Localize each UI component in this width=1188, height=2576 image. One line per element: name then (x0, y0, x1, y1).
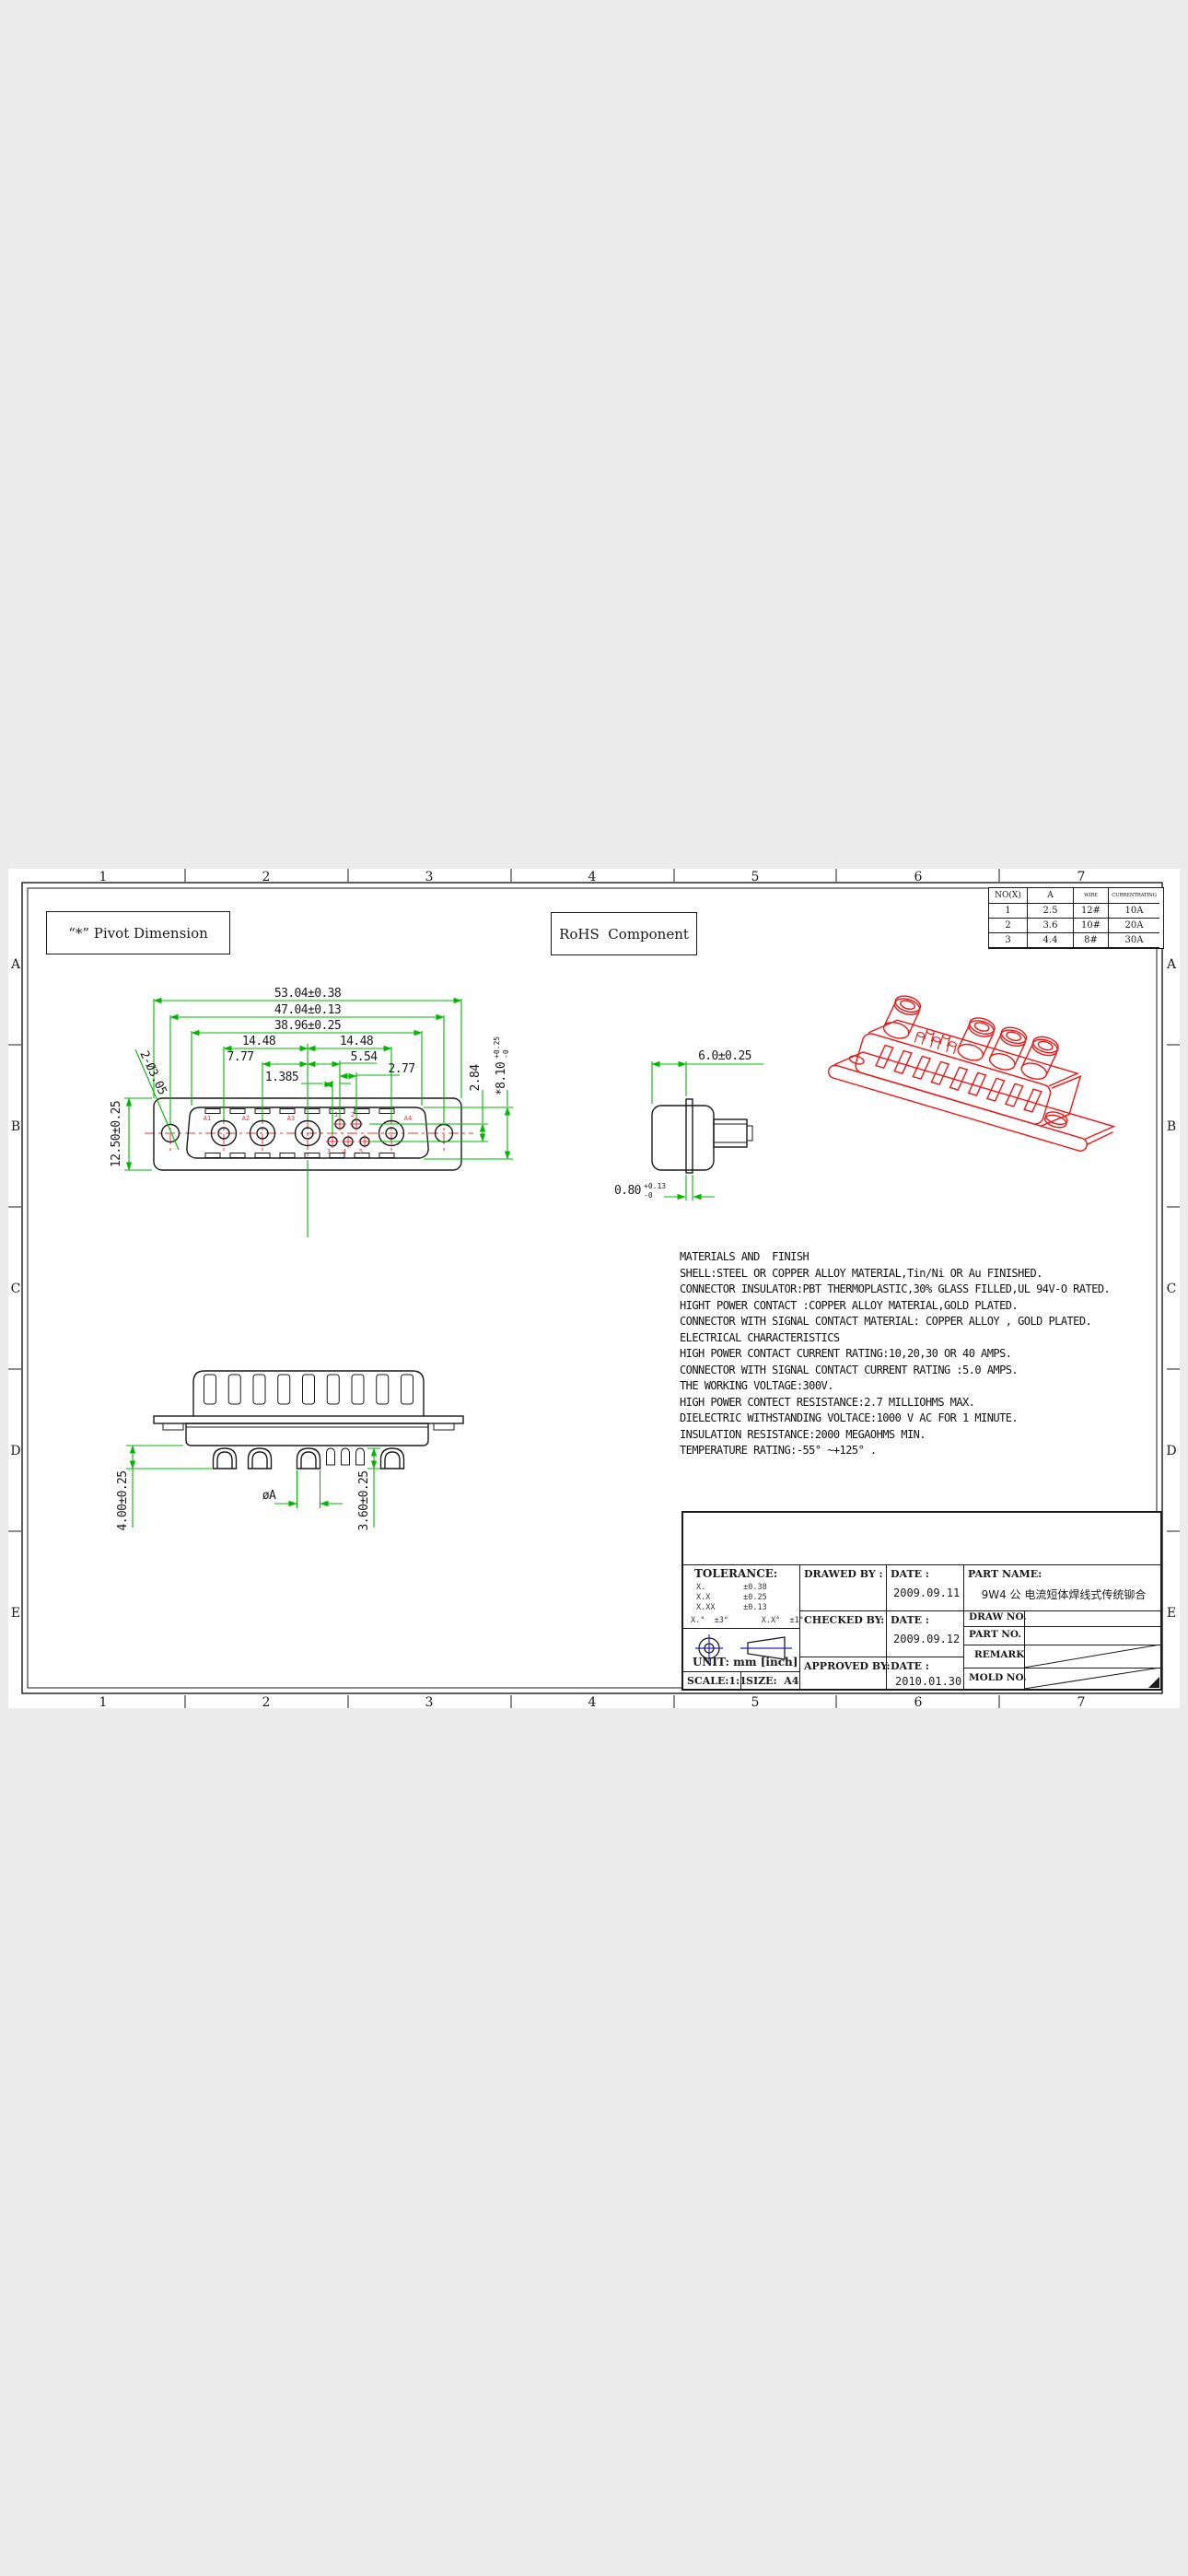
dim-777: 7.77 (227, 1050, 254, 1064)
draw-no-label: DRAW NO. (969, 1611, 1027, 1622)
zone-col: 6 (914, 1695, 923, 1708)
rt-header-current: CURRENTRATING (1109, 888, 1159, 904)
rt-cell: 30A (1109, 933, 1159, 948)
contact-label-a2: A2 (242, 1115, 250, 1122)
side-view: 6.0±0.25 0.80 +0.13 -0 (614, 1049, 763, 1200)
title-block: TOLERANCE: X. ±0.38 X.X ±0.25 X.XX ±0.13… (681, 1511, 1162, 1691)
zone-row: C (11, 1282, 21, 1296)
dim-1448-left: 14.48 (242, 1035, 275, 1048)
rt-cell: 2.5 (1028, 904, 1074, 919)
zone-col: 7 (1077, 870, 1086, 884)
rt-header-a: A (1028, 888, 1074, 904)
zone-col: 1 (99, 870, 108, 884)
dim-47: 47.04±0.13 (274, 1003, 341, 1017)
zone-row: E (1167, 1606, 1176, 1621)
rt-cell: 1 (989, 904, 1028, 919)
approved-date: 2010.01.30 (895, 1675, 961, 1688)
approved-by-label: APPROVED BY: (804, 1660, 891, 1672)
dim-554: 5.54 (351, 1050, 379, 1064)
sheet-corner-mark (1148, 1677, 1159, 1688)
materials-notes: MATERIALS AND FINISH SHELL:STEEL OR COPP… (680, 1249, 1155, 1459)
dim-1385: 1.385 (265, 1071, 298, 1084)
date-label-2: DATE : (891, 1614, 929, 1626)
rt-cell: 10A (1109, 904, 1159, 919)
dim-39: 38.96±0.25 (274, 1019, 341, 1033)
checked-by-label: CHECKED BY: (804, 1614, 884, 1626)
mold-no-label: MOLD NO. (969, 1672, 1027, 1683)
rohs-note: RoHS Component (551, 912, 697, 955)
screenshot-page: 1 2 3 4 5 6 7 1 2 3 4 5 6 7 A B C D E A … (0, 0, 1188, 2576)
tolerance-title: TOLERANCE: (694, 1567, 777, 1580)
pin-label-4: 4 (343, 1148, 346, 1155)
rt-header-no: NO(X) (989, 888, 1028, 904)
zone-row: E (11, 1606, 20, 1621)
zone-col: 6 (914, 870, 923, 884)
zone-col: 5 (751, 870, 760, 884)
dim-60: 6.0±0.25 (698, 1049, 751, 1063)
dim-810-sub: -0 (502, 1049, 510, 1059)
drawn-date: 2009.09.11 (893, 1587, 960, 1599)
contact-label-a4: A4 (404, 1115, 412, 1122)
zone-row: D (1166, 1444, 1176, 1458)
unit-label: UNIT: mm [inch] (693, 1656, 798, 1669)
pin-label-1: 1 (334, 1111, 338, 1118)
zone-col: 2 (262, 1695, 271, 1708)
contact-label-a1: A1 (204, 1115, 211, 1122)
rt-cell: 2 (989, 919, 1028, 933)
zone-col: 5 (751, 1695, 760, 1708)
rt-cell: 10# (1074, 919, 1109, 933)
zone-row: C (1167, 1282, 1177, 1296)
zone-col: 4 (588, 1695, 597, 1708)
dim-080-sub: -0 (644, 1191, 653, 1200)
dim-277: 2.77 (389, 1062, 415, 1076)
dim-dia-a: øA (262, 1489, 276, 1503)
dim-080: 0.80 (614, 1184, 641, 1198)
contact-label-a3: A3 (287, 1115, 295, 1122)
dim-1448-right: 14.48 (340, 1035, 373, 1048)
rt-cell: 8# (1074, 933, 1109, 948)
date-label-3: DATE : (891, 1660, 929, 1672)
zone-row: B (11, 1119, 20, 1134)
zone-col: 4 (588, 870, 597, 884)
remark-slash (1024, 1645, 1160, 1668)
date-label-1: DATE : (891, 1568, 929, 1580)
size-label: SIZE: A4 (746, 1675, 798, 1687)
rt-cell: 3.6 (1028, 919, 1074, 933)
pin-label-3: 3 (327, 1148, 331, 1155)
bottom-view: 4.00±0.25 3.60±0.25 øA (116, 1371, 463, 1531)
mold-slash (1024, 1668, 1160, 1689)
zone-col: 1 (99, 1695, 108, 1708)
rt-header-wire: WIRE (1074, 888, 1109, 904)
scale-label: SCALE:1:1 (687, 1675, 747, 1687)
part-name-value: 9W4 公 电流短体焊线式传统铆合 (965, 1587, 1162, 1602)
rt-cell: 20A (1109, 919, 1159, 933)
tolerance-angles: X.° ±3° X.X° ±1° (691, 1616, 804, 1626)
zone-col: 2 (262, 870, 271, 884)
rt-cell: 4.4 (1028, 933, 1074, 948)
zone-row: A (10, 957, 21, 972)
zone-col: 3 (425, 870, 434, 884)
dim-810: *8.10 (495, 1062, 508, 1095)
dim-53: 53.04±0.38 (274, 987, 341, 1001)
checked-date: 2009.09.12 (893, 1633, 960, 1645)
rohs-label: RoHS Component (559, 926, 689, 943)
part-no-label: PART NO. (969, 1629, 1021, 1640)
dim-1250: 12.50±0.25 (110, 1101, 123, 1167)
zone-row: A (1166, 957, 1177, 972)
isometric-view (827, 980, 1134, 1158)
remark-label: REMARK (974, 1649, 1024, 1660)
dim-810-sup: +0.25 (493, 1036, 501, 1059)
part-name-label: PART NAME: (968, 1568, 1042, 1580)
dim-400: 4.00±0.25 (116, 1470, 130, 1530)
zone-row: B (1167, 1119, 1176, 1134)
tolerance-rows: X. ±0.38 X.X ±0.25 X.XX ±0.13 (696, 1583, 767, 1613)
pivot-dimension-label: “*” Pivot Dimension (68, 925, 208, 942)
dim-360: 3.60±0.25 (357, 1470, 371, 1530)
dim-080-sup: +0.13 (644, 1182, 666, 1190)
dim-284: 2.84 (469, 1064, 483, 1092)
rt-cell: 3 (989, 933, 1028, 948)
pin-label-5: 5 (359, 1148, 363, 1155)
drawn-by-label: DRAWED BY : (804, 1568, 883, 1580)
pivot-dimension-note: “*” Pivot Dimension (46, 911, 230, 954)
rt-cell: 12# (1074, 904, 1109, 919)
zone-col: 7 (1077, 1695, 1086, 1708)
pin-label-2: 2 (351, 1111, 355, 1118)
current-rating-table: NO(X) A WIRE CURRENTRATING 1 2.5 12# 10A… (988, 887, 1164, 949)
zone-row: D (10, 1444, 20, 1458)
zone-col: 3 (425, 1695, 434, 1708)
